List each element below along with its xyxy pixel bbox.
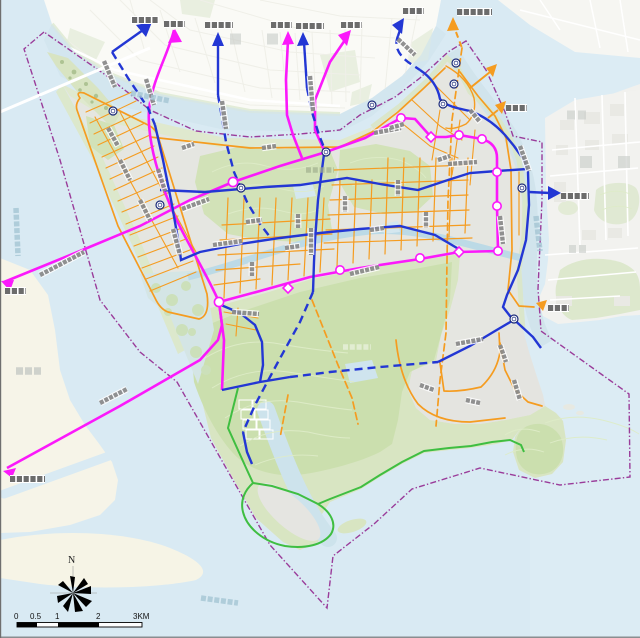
svg-text:N: N <box>68 555 75 566</box>
svg-text:2: 2 <box>96 612 101 621</box>
svg-text:0.5: 0.5 <box>30 612 42 621</box>
svg-text:3KM: 3KM <box>133 612 150 621</box>
svg-text:1: 1 <box>55 612 60 621</box>
svg-text:0: 0 <box>14 612 19 621</box>
